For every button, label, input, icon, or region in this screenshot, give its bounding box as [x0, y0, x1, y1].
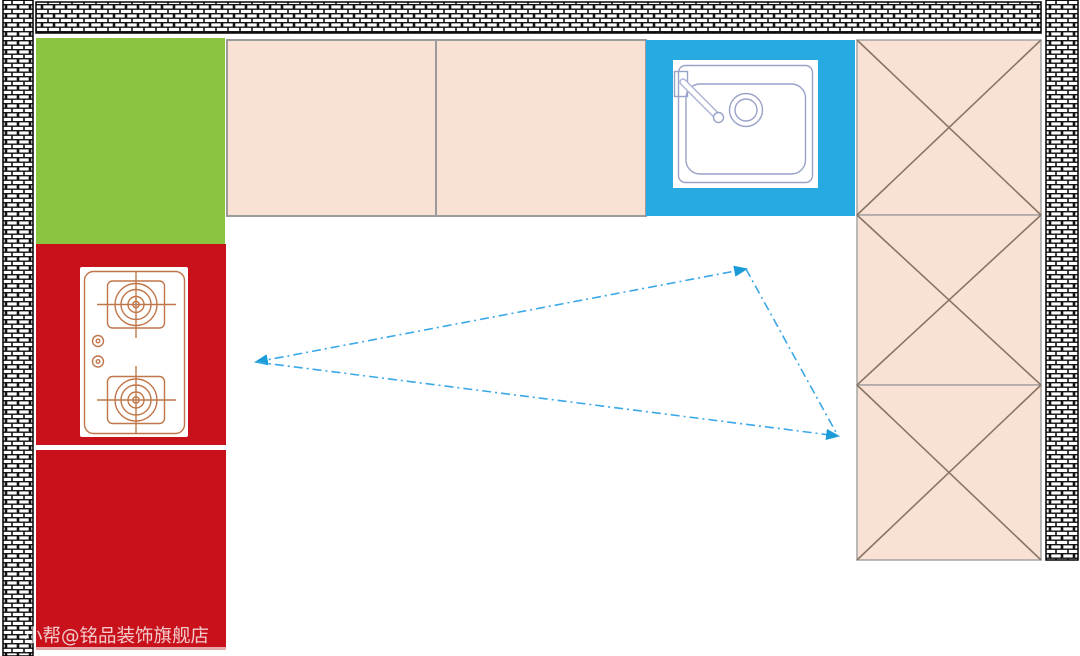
- top-brick-wall: [36, 2, 1041, 33]
- right-brick-wall: [1046, 0, 1078, 560]
- watermark-text: 小帮@铭品装饰旗舰店: [24, 626, 209, 647]
- floor-plan-canvas: 小帮@铭品装饰旗舰店: [0, 0, 1080, 656]
- work-triangle-edge-stove-sink: [256, 269, 746, 362]
- red-cooktop-block-lower: [36, 450, 226, 647]
- red-block-bottom-edge: [36, 647, 226, 650]
- work-triangle-edge-sink-cabinet: [746, 269, 838, 436]
- work-triangle-edge-stove-cabinet: [256, 362, 838, 436]
- left-brick-wall: [3, 0, 33, 656]
- green-cabinet-block: [36, 38, 225, 244]
- kitchen-floor-plan: 小帮@铭品装饰旗舰店: [0, 0, 1080, 656]
- stove-panel: [80, 267, 188, 437]
- counter-segment-2: [436, 40, 646, 216]
- counter-segment-1: [227, 40, 436, 216]
- work-triangle: [256, 269, 838, 436]
- sink-panel: [673, 60, 818, 188]
- top-counter-row: [227, 40, 646, 216]
